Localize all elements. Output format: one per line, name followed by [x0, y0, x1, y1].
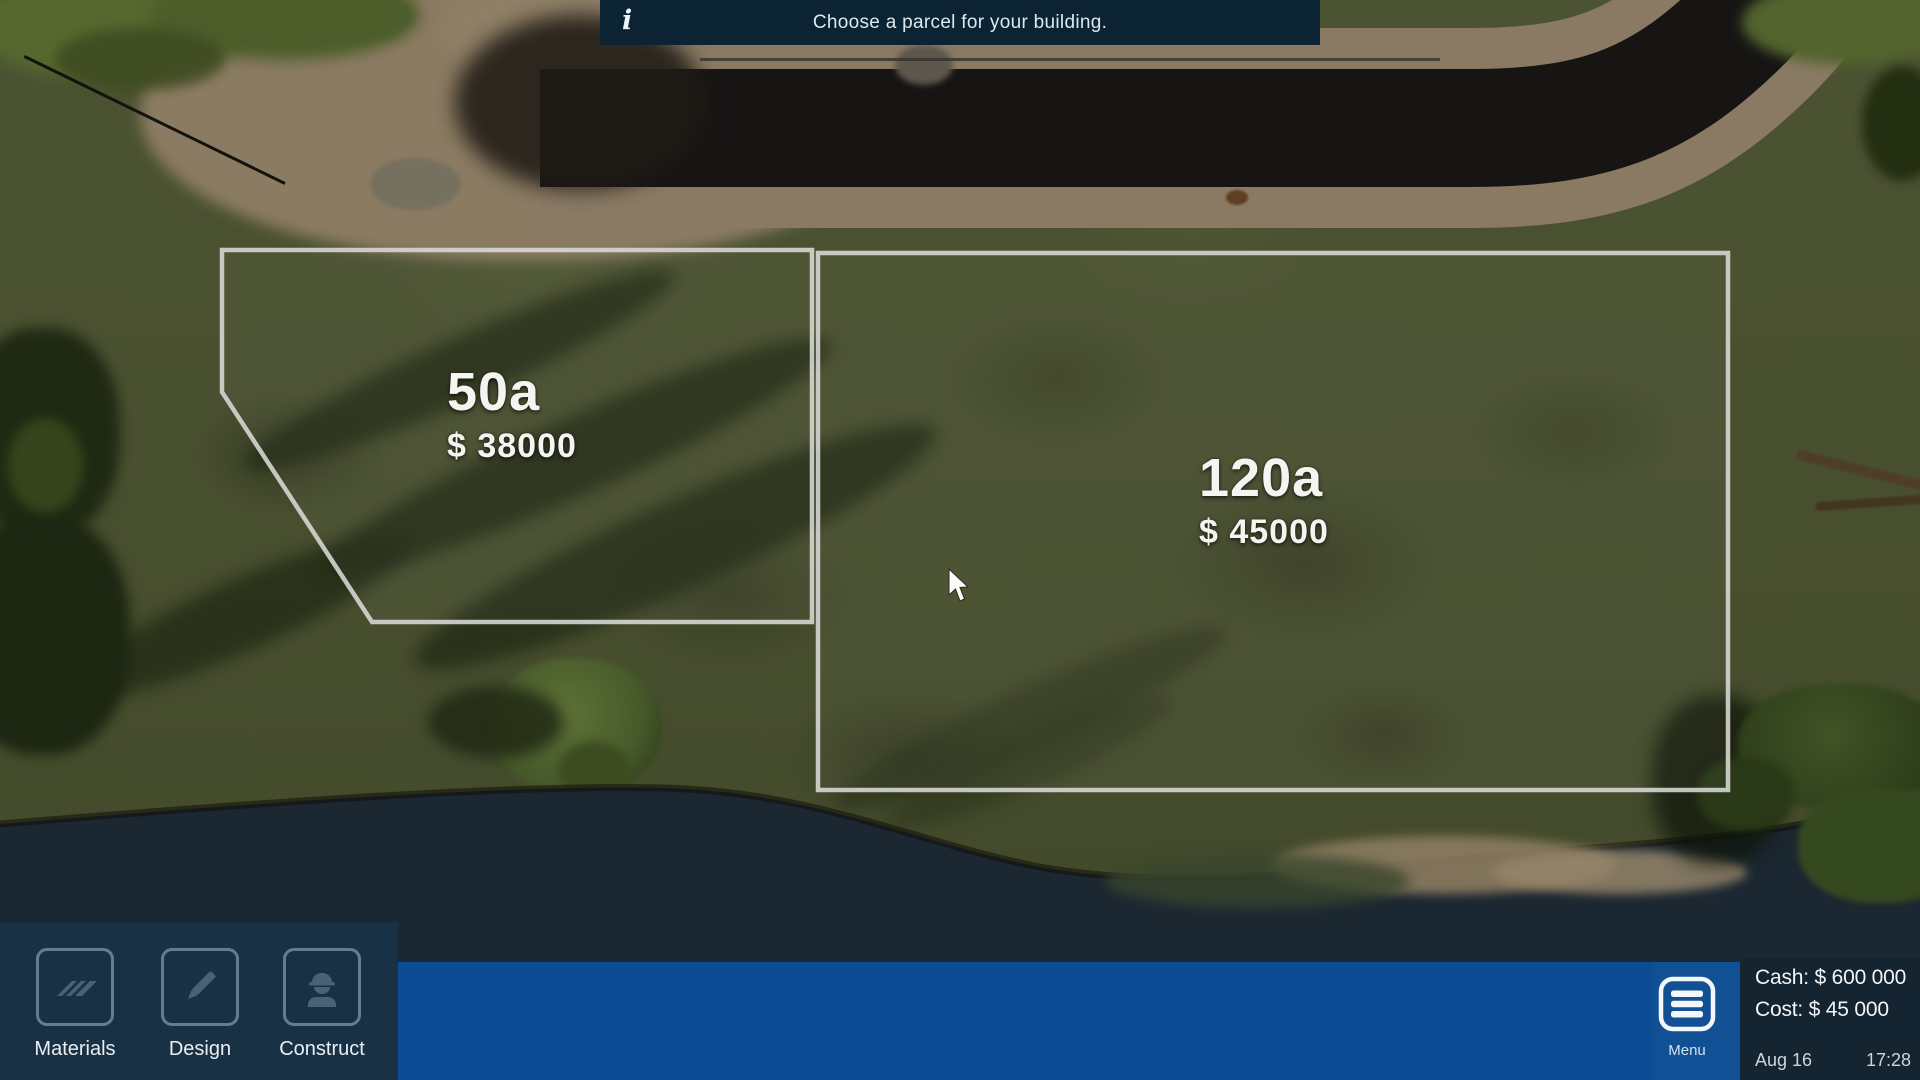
- info-banner: i Choose a parcel for your building.: [600, 0, 1320, 45]
- parcel-area-label: 50a: [447, 365, 577, 419]
- construct-button[interactable]: Construct: [266, 948, 378, 1061]
- parcel-area-label: 120a: [1199, 451, 1329, 505]
- status-panel: Cash: $ 600 000 Cost: $ 45 000 Aug 16 17…: [1740, 958, 1920, 1080]
- construct-button-box[interactable]: [283, 948, 361, 1026]
- materials-button-box[interactable]: [36, 948, 114, 1026]
- menu-button[interactable]: Menu: [1652, 976, 1722, 1059]
- parcel-outlines: [0, 0, 1920, 1080]
- parcel-50a[interactable]: 50a $ 38000: [447, 365, 577, 466]
- build-toolbar: Materials Design: [0, 922, 398, 1080]
- design-button-box[interactable]: [161, 948, 239, 1026]
- materials-button[interactable]: Materials: [19, 948, 131, 1061]
- info-banner-message: Choose a parcel for your building.: [813, 12, 1107, 34]
- design-pencil-icon: [176, 963, 224, 1011]
- design-button[interactable]: Design: [144, 948, 256, 1061]
- menu-hamburger-icon: [1658, 976, 1716, 1032]
- game-screen: 50a $ 38000 120a $ 45000 i Choose a parc…: [0, 0, 1920, 1080]
- materials-roof-icon: [51, 963, 99, 1011]
- materials-button-label: Materials: [19, 1038, 131, 1061]
- cost-value: Cost: $ 45 000: [1755, 998, 1889, 1022]
- game-date: Aug 16: [1755, 1050, 1812, 1071]
- design-button-label: Design: [144, 1038, 256, 1061]
- parcel-120a[interactable]: 120a $ 45000: [1199, 451, 1329, 552]
- parcel-price-label: $ 45000: [1199, 513, 1329, 552]
- game-time: 17:28: [1866, 1050, 1911, 1071]
- parcel-price-label: $ 38000: [447, 427, 577, 466]
- hud-bottom-bar: Menu: [398, 962, 1740, 1080]
- menu-button-label: Menu: [1652, 1042, 1722, 1059]
- cash-value: Cash: $ 600 000: [1755, 966, 1906, 990]
- info-icon: i: [622, 5, 632, 36]
- construct-button-label: Construct: [266, 1038, 378, 1061]
- construct-worker-icon: [298, 963, 346, 1011]
